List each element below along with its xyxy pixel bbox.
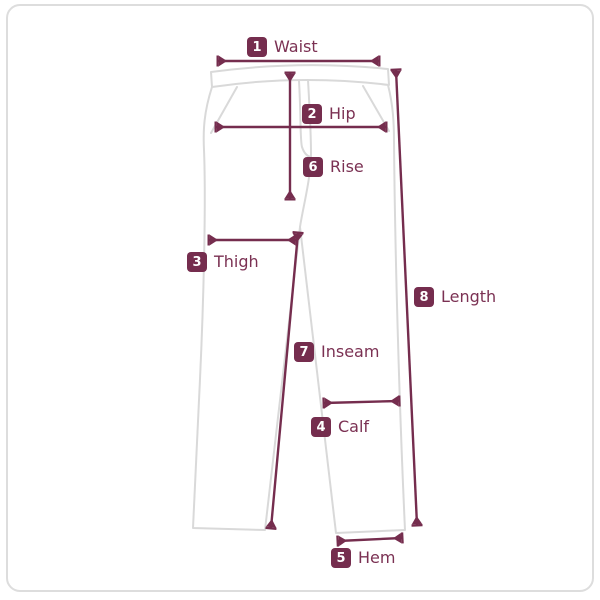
pants-diagram-canvas [0,0,600,600]
label-hip: 2 Hip [302,104,356,124]
inseam-label-text: Inseam [321,344,379,360]
hem-dimension-line [338,538,402,541]
waist-number-badge: 1 [247,37,267,57]
inseam-dimension-line [271,233,298,528]
calf-label-text: Calf [338,419,369,435]
pants-right-pocket [363,86,389,131]
label-thigh: 3 Thigh [187,252,259,272]
hem-label-text: Hem [358,550,395,566]
label-inseam: 7 Inseam [294,342,379,362]
label-hem: 5 Hem [331,548,395,568]
calf-dimension-line [324,401,399,403]
label-waist: 1 Waist [247,37,318,57]
pants-outline [193,65,405,533]
label-rise: 6 Rise [303,157,364,177]
hem-number-badge: 5 [331,548,351,568]
calf-number-badge: 4 [311,417,331,437]
rise-label-text: Rise [330,159,364,175]
thigh-label-text: Thigh [214,254,259,270]
inseam-number-badge: 7 [294,342,314,362]
thigh-number-badge: 3 [187,252,207,272]
label-length: 8 Length [414,287,496,307]
hip-label-text: Hip [329,106,356,122]
length-label-text: Length [441,289,496,305]
rise-number-badge: 6 [303,157,323,177]
pants-left-leg [193,87,300,530]
waist-label-text: Waist [274,39,318,55]
hip-number-badge: 2 [302,104,322,124]
measurement-diagram: 1 Waist 2 Hip 3 Thigh 4 Calf 5 Hem 6 Ris… [0,0,600,600]
label-calf: 4 Calf [311,417,369,437]
length-number-badge: 8 [414,287,434,307]
dimension-lines [209,61,417,541]
pants-right-leg [300,85,405,533]
